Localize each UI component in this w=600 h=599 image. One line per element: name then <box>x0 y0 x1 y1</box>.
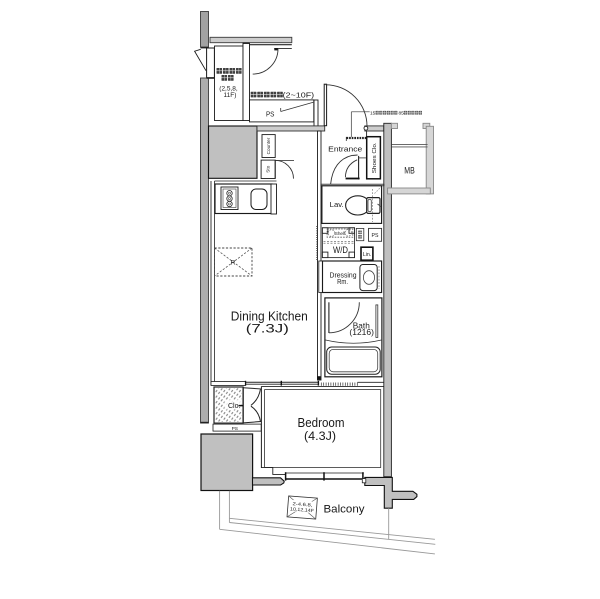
svg-text:Lav.: Lav. <box>330 200 344 209</box>
svg-text:MB: MB <box>404 166 415 177</box>
svg-text:(1216): (1216) <box>349 327 374 337</box>
svg-text:11F): 11F) <box>224 92 237 99</box>
svg-text:Bedroom: Bedroom <box>298 415 345 430</box>
svg-text:Lin.: Lin. <box>363 252 371 258</box>
svg-text:Rm.: Rm. <box>337 277 348 286</box>
svg-text:(7.3J): (7.3J) <box>246 322 289 336</box>
svg-text:(2~10F): (2~10F) <box>283 90 315 99</box>
svg-text:15: 15 <box>370 111 376 117</box>
svg-text:W/D: W/D <box>333 245 348 255</box>
svg-text:Shelf: Shelf <box>335 231 346 237</box>
svg-text:Entrance: Entrance <box>328 144 362 153</box>
svg-text:Shoes Clo.: Shoes Clo. <box>372 142 378 173</box>
svg-text:PS: PS <box>266 109 275 118</box>
svg-text:Sto: Sto <box>266 165 271 172</box>
svg-text:Balcony: Balcony <box>324 504 366 516</box>
svg-text:PS: PS <box>232 426 238 432</box>
svg-text:Clo.: Clo. <box>228 401 241 410</box>
svg-text:Counter: Counter <box>266 137 271 154</box>
svg-text:(4.3J): (4.3J) <box>304 429 336 443</box>
svg-text:PS: PS <box>372 233 379 239</box>
svg-text:85: 85 <box>399 111 405 117</box>
svg-text:R: R <box>231 260 236 267</box>
